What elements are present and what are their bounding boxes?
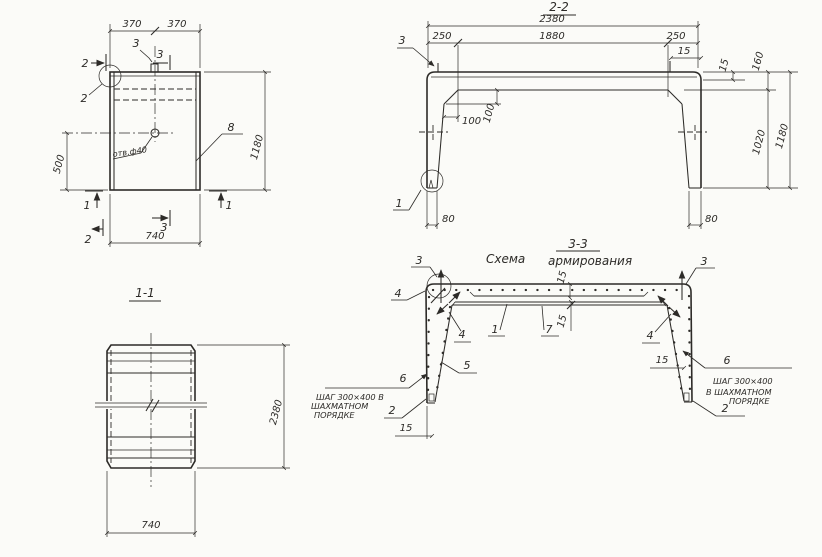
dim-15-cover-mid: 15: [556, 314, 570, 329]
section-3-flag: 3: [157, 48, 164, 61]
plan-view: 370 370 1180 500 740 отв.ф40 8 2: [52, 19, 271, 247]
dim-15-cover-bottom: 15: [400, 423, 413, 434]
label-2-left: 2: [389, 404, 396, 417]
label-2-right: 2: [722, 402, 729, 415]
section-3-marker-bottom: 3: [161, 221, 168, 234]
section-1-1-title: 1-1: [135, 286, 155, 300]
dim-740-section11: 740: [141, 520, 160, 531]
dim-1880: 1880: [539, 31, 564, 42]
label-4-left: 4: [459, 328, 466, 341]
section-2-2-dimensions: 2380 250 1880 250 15 15 160 1020 1180 10…: [427, 14, 798, 229]
bar-4-left: [449, 292, 460, 303]
dim-1180-height: 1180: [774, 123, 791, 150]
dim-500: 500: [52, 154, 68, 175]
label-6-left: 6: [400, 372, 407, 385]
detail-circle-foot: [421, 170, 443, 192]
label-5-bar: 5: [464, 359, 471, 372]
dim-250-right: 250: [666, 31, 685, 42]
bar-hook-left: [429, 394, 434, 401]
dim-80-right: 80: [705, 214, 718, 225]
dim-160: 160: [751, 51, 767, 72]
dim-15-cover-top: 15: [556, 270, 570, 285]
section-3-3-notes: ШАГ 300×400 В ШАХМАТНОМ ПОРЯДКЕ ШАГ 300×…: [311, 376, 773, 420]
section-1-1-outline: [95, 333, 207, 487]
label-3-left: 3: [416, 254, 423, 267]
label-4-right: 4: [647, 329, 654, 342]
section-2-marker-bottom: 2: [85, 233, 92, 246]
title-schema: Схема: [486, 252, 525, 266]
section-2-2-title: 2-2: [549, 0, 569, 14]
bar-label-3: 3: [399, 34, 406, 47]
dim-15-cover-right: 15: [656, 355, 669, 366]
drawing-canvas: 370 370 1180 500 740 отв.ф40 8 2: [0, 0, 822, 557]
section-3-3-title: Схема 3-3 армирования: [486, 237, 632, 268]
detail-label-1: 1: [396, 197, 403, 210]
section-3-3: Схема 3-3 армирования: [311, 237, 792, 439]
dim-15-top: 15: [678, 46, 691, 57]
dim-80-left: 80: [442, 214, 455, 225]
dim-250-left: 250: [432, 31, 451, 42]
section-3-marker-top: 3: [133, 37, 140, 50]
label-6-right: 6: [724, 354, 731, 367]
dim-370-right: 370: [167, 19, 186, 30]
note-right-line1: ШАГ 300×400: [713, 376, 773, 386]
note-left-line3: ПОРЯДКЕ: [314, 410, 355, 420]
detail-2-leader-label: 2: [81, 92, 88, 105]
dim-370-left: 370: [122, 19, 141, 30]
label-4-top-left: 4: [395, 287, 402, 300]
plan-section-markers: 2 3 3 2 1 1 3 2: [81, 37, 233, 246]
bar-hook-right: [684, 393, 689, 401]
section-2-2: 2-2 2380: [393, 0, 798, 229]
title-3-3: 3-3: [568, 237, 588, 251]
drawing-sheet: 370 370 1180 500 740 отв.ф40 8 2: [0, 0, 822, 557]
plan-label-8: 8: [196, 121, 243, 161]
dim-100-vertical: 100: [482, 103, 498, 124]
lifting-loop: [151, 64, 158, 72]
note-right-line3: ПОРЯДКЕ: [729, 396, 770, 406]
section-1-marker-right: 1: [226, 199, 233, 212]
part-label-8: 8: [228, 121, 235, 134]
dim-15-right: 15: [718, 58, 732, 73]
section-1-marker-left: 1: [84, 199, 91, 212]
label-7-bar: 7: [546, 323, 553, 336]
plan-hole-note: отв.ф40: [112, 137, 152, 159]
label-1-bar: 1: [492, 323, 499, 336]
title-armirovaniya: армирования: [548, 254, 632, 268]
section-2-marker-top: 2: [82, 57, 89, 70]
dim-2380-length: 2380: [268, 399, 285, 426]
section-1-1: 1-1 2380 740: [95, 286, 290, 537]
dim-1020: 1020: [751, 129, 768, 156]
section-2-2-labels: 3 1: [393, 34, 434, 210]
bar-4-right: [669, 307, 680, 317]
dim-2380-overall: 2380: [539, 14, 564, 25]
label-3-right: 3: [701, 255, 708, 268]
dim-1180-plan: 1180: [249, 134, 266, 161]
dim-100-horizontal: 100: [462, 116, 481, 127]
section-1-1-dimensions: 2380 740: [107, 345, 290, 537]
